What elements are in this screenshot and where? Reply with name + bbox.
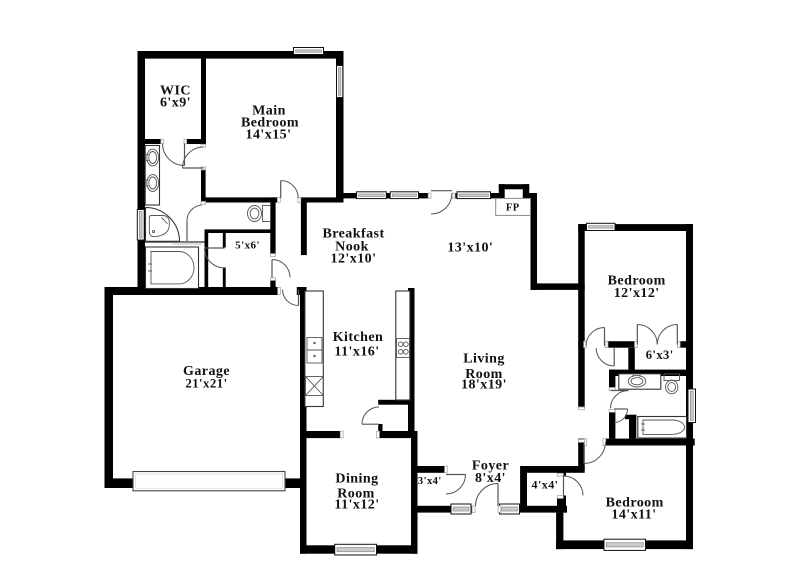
svg-text:18'x19': 18'x19' xyxy=(461,378,507,393)
svg-text:Dining: Dining xyxy=(335,472,378,487)
svg-text:6'x3': 6'x3' xyxy=(646,348,674,362)
svg-text:3'x4': 3'x4' xyxy=(418,476,442,487)
svg-text:11'x12': 11'x12' xyxy=(334,498,379,513)
svg-text:14'x11': 14'x11' xyxy=(611,508,656,523)
svg-text:5'x6': 5'x6' xyxy=(235,240,260,252)
svg-text:Living: Living xyxy=(463,352,505,367)
svg-text:12'x12': 12'x12' xyxy=(614,286,660,301)
svg-text:FP: FP xyxy=(506,203,520,214)
svg-text:Kitchen: Kitchen xyxy=(333,330,384,345)
svg-text:14'x15': 14'x15' xyxy=(246,127,292,142)
svg-text:13'x10': 13'x10' xyxy=(447,240,493,255)
svg-text:6'x9': 6'x9' xyxy=(160,96,191,111)
svg-text:11'x16': 11'x16' xyxy=(334,345,379,360)
svg-text:8'x4': 8'x4' xyxy=(475,471,506,486)
svg-text:12'x10': 12'x10' xyxy=(331,252,377,267)
svg-text:4'x4': 4'x4' xyxy=(532,478,559,492)
svg-text:21'x21': 21'x21' xyxy=(185,377,227,391)
